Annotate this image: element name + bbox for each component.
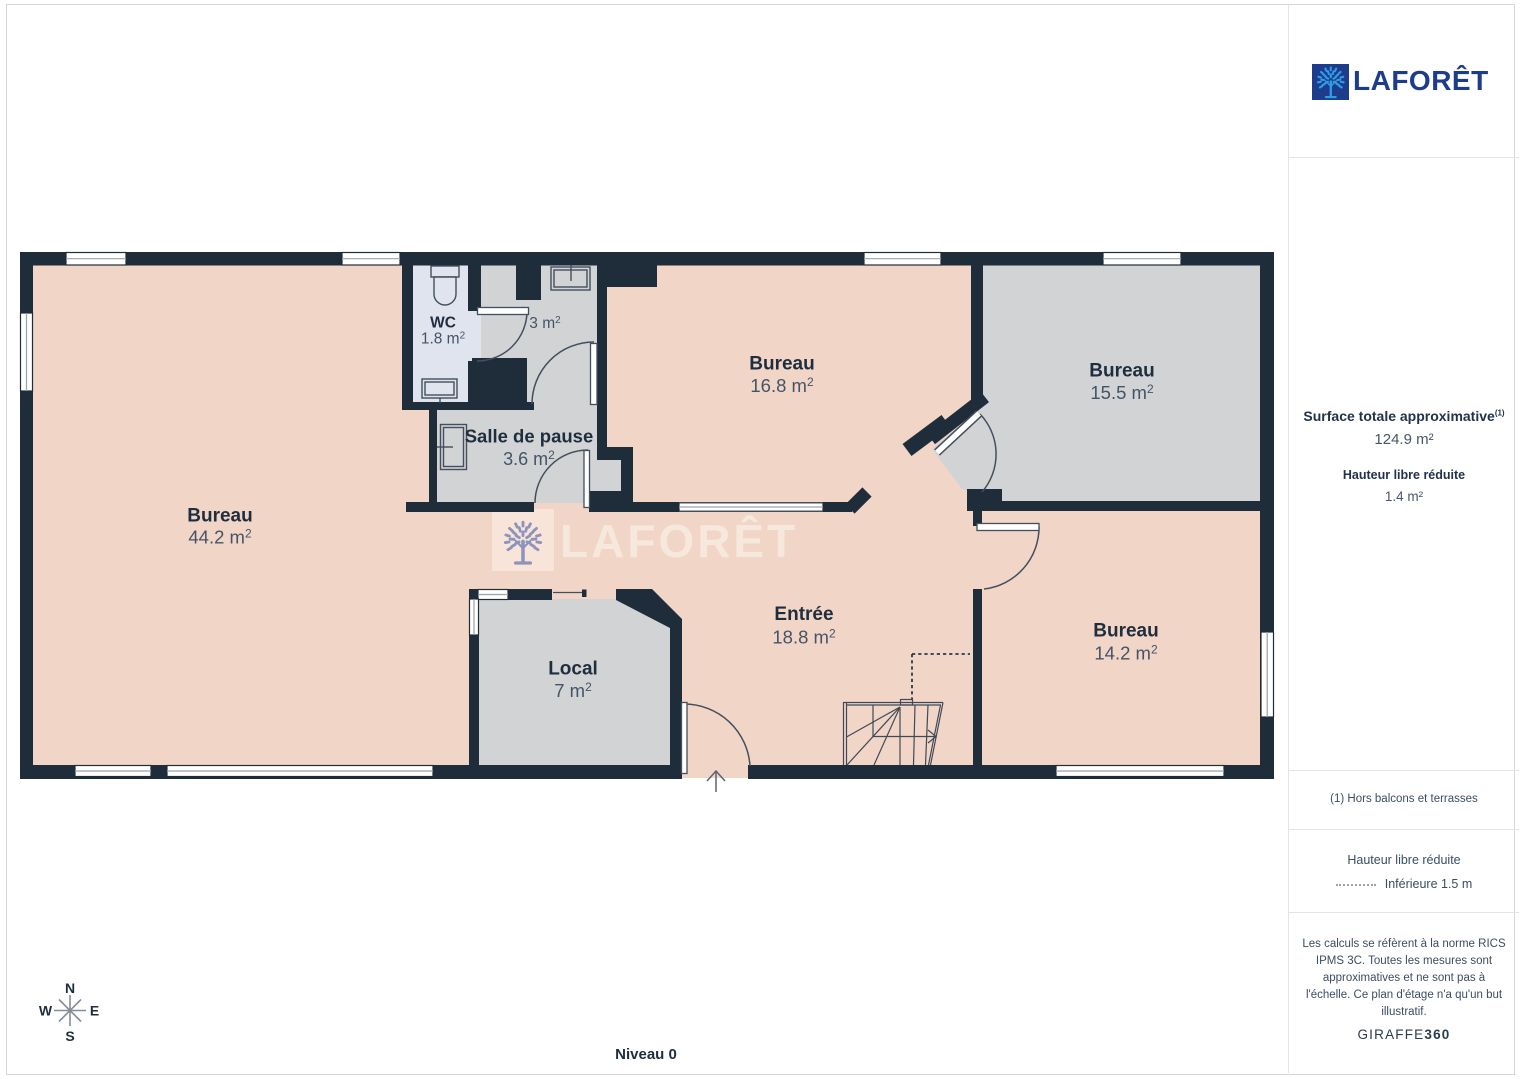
svg-text:14.2 m2: 14.2 m2 — [1094, 643, 1158, 664]
svg-text:LAFORÊT: LAFORÊT — [560, 515, 798, 567]
svg-text:W: W — [39, 1003, 53, 1019]
svg-text:Niveau 0: Niveau 0 — [615, 1046, 677, 1063]
svg-text:15.5 m2: 15.5 m2 — [1090, 382, 1154, 403]
svg-text:S: S — [65, 1028, 74, 1044]
svg-text:3.6 m2: 3.6 m2 — [503, 448, 555, 469]
svg-text:16.8 m2: 16.8 m2 — [750, 375, 814, 396]
svg-text:1.8 m2: 1.8 m2 — [421, 331, 466, 348]
svg-text:Bureau: Bureau — [1089, 361, 1154, 382]
svg-text:Bureau: Bureau — [1093, 621, 1158, 642]
svg-text:WC: WC — [430, 315, 456, 332]
svg-text:Entrée: Entrée — [774, 604, 833, 625]
svg-text:N: N — [65, 980, 75, 996]
svg-text:18.8 m2: 18.8 m2 — [772, 627, 836, 648]
svg-text:Local: Local — [548, 659, 598, 680]
svg-text:Salle de pause: Salle de pause — [465, 426, 594, 447]
svg-text:E: E — [90, 1003, 99, 1019]
svg-text:Bureau: Bureau — [187, 506, 252, 527]
svg-text:Bureau: Bureau — [749, 354, 814, 375]
svg-text:44.2 m2: 44.2 m2 — [188, 527, 252, 548]
